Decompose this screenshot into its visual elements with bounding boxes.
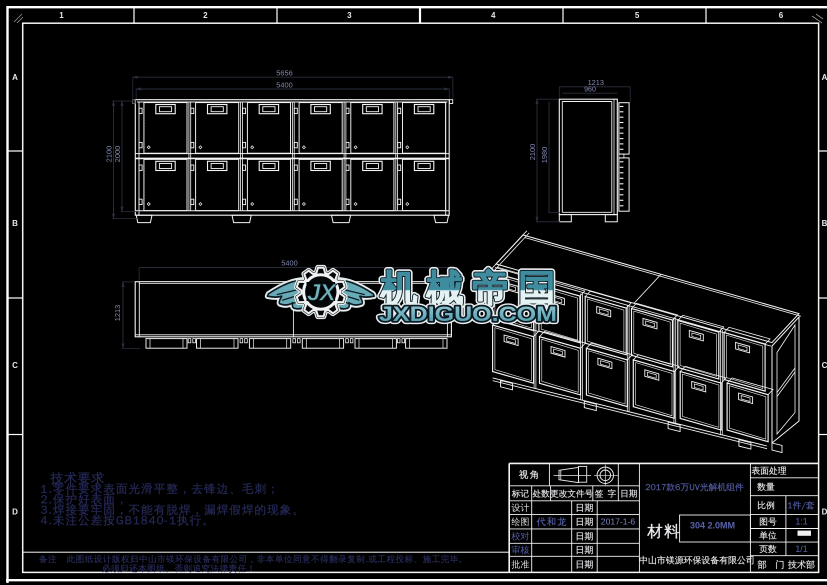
svg-text:2000: 2000: [113, 146, 122, 162]
svg-text:2: 2: [203, 11, 208, 20]
svg-text:6: 6: [779, 11, 784, 20]
svg-text:4: 4: [491, 11, 496, 20]
svg-text:C: C: [12, 361, 18, 370]
svg-text:A: A: [822, 73, 827, 82]
svg-text:C: C: [822, 361, 827, 370]
svg-text:1: 1: [59, 11, 64, 20]
svg-text:D: D: [12, 507, 18, 516]
svg-text:1/1: 1/1: [795, 544, 807, 554]
svg-text:960: 960: [584, 87, 596, 94]
svg-text:3: 3: [347, 11, 352, 20]
svg-text:JXDIGUO.COM: JXDIGUO.COM: [379, 302, 557, 326]
svg-text:1:1: 1:1: [795, 517, 807, 527]
svg-text:2017-1-6: 2017-1-6: [601, 517, 636, 527]
svg-text:5400: 5400: [281, 259, 297, 268]
svg-text:2100: 2100: [528, 144, 537, 160]
svg-text:A: A: [12, 73, 18, 82]
svg-text:1213: 1213: [113, 305, 122, 321]
svg-text:5: 5: [635, 11, 640, 20]
svg-text:JX: JX: [307, 280, 338, 307]
svg-text:D: D: [822, 507, 827, 516]
svg-text:5656: 5656: [276, 69, 292, 78]
svg-text:5400: 5400: [276, 80, 292, 89]
svg-text:B: B: [822, 219, 827, 228]
svg-text:304 2.0MM: 304 2.0MM: [690, 521, 735, 531]
svg-text:B: B: [12, 219, 18, 228]
svg-text:1980: 1980: [540, 147, 549, 163]
